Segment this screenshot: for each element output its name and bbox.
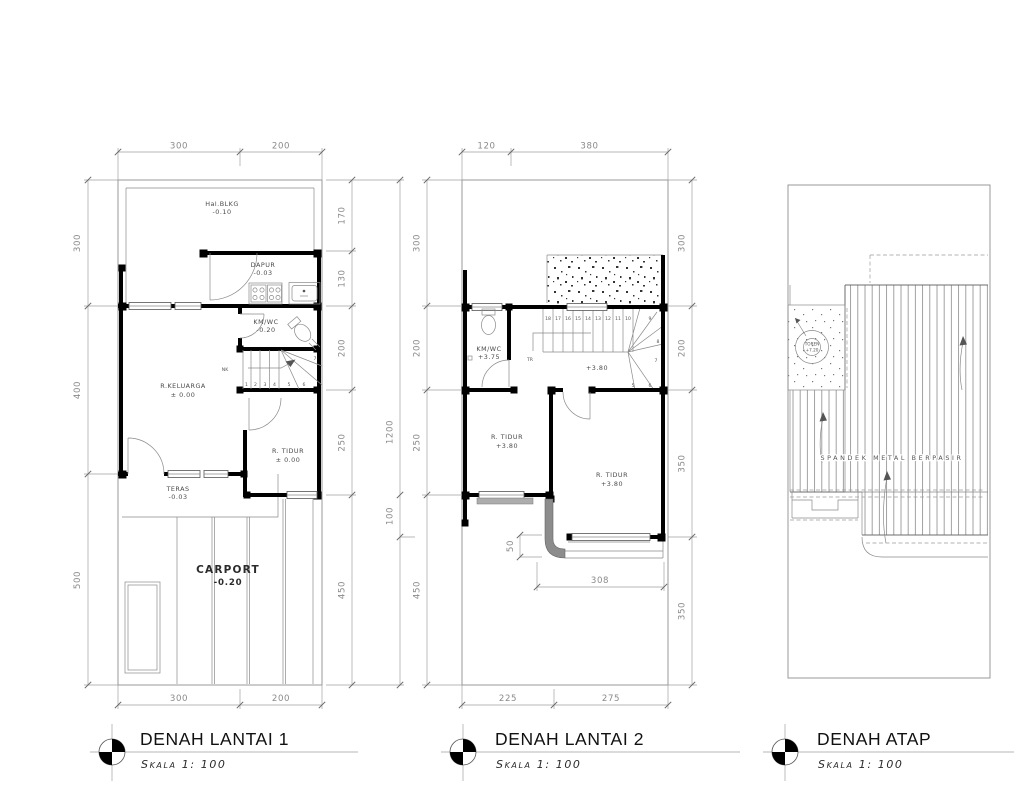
plan2-columns (462, 304, 668, 542)
kitchen-counter (249, 283, 320, 305)
atap-scale: Skala 1: 100 (818, 758, 904, 771)
dim: 250 (413, 433, 423, 451)
stair-num: 8 (657, 339, 660, 345)
plan2-title: DENAH LANTAI 2 (495, 729, 644, 749)
toilet-icon-lt1 (287, 316, 314, 345)
plan2-scale: Skala 1: 100 (496, 758, 582, 771)
dim: 300 (678, 234, 688, 252)
stair-num: 12 (605, 316, 611, 322)
tr-label: TR (526, 357, 534, 363)
room-keluarga-level: ± 0.00 (171, 391, 196, 399)
stove-icon (251, 285, 282, 302)
stair-num: 6 (303, 382, 306, 388)
room-tidur2: R. TIDUR (596, 471, 628, 479)
dim: 300 (170, 142, 188, 152)
room-kmwc-lt1: KM/WC (253, 318, 278, 326)
dim: 250 (338, 433, 348, 451)
toren-label: TOREN (804, 342, 820, 347)
room-carport-level: -0.20 (214, 578, 243, 588)
room-carport: CARPORT (196, 564, 260, 576)
dim: 130 (338, 269, 348, 287)
stair-num: 7 (655, 358, 658, 364)
landing-level: +3.80 (586, 364, 608, 372)
plan1-windows (129, 303, 317, 499)
room-kmwc-lt1-level: -0.20 (256, 326, 275, 334)
dim-canopy-depth: 50 (506, 540, 516, 552)
room-tidur2-level: +3.80 (601, 480, 623, 488)
plan1-property-boundary (118, 180, 322, 685)
stair-num: 5 (632, 383, 635, 389)
room-kmwc-lt2-level: +3.75 (478, 353, 500, 361)
void-hatch (547, 255, 663, 305)
dim: 200 (413, 339, 423, 357)
dim-canopy-width: 308 (591, 576, 609, 586)
room-dapur: DAPUR (251, 261, 276, 269)
dim: 300 (170, 694, 188, 704)
room-teras-level: -0.03 (168, 493, 187, 501)
stair-num: 17 (555, 316, 561, 322)
stair-num: 14 (585, 316, 591, 322)
dim: 120 (477, 142, 495, 152)
toren-level: +7.20 (806, 348, 819, 353)
dim: 450 (338, 581, 348, 599)
dim-total: 1200 (386, 420, 396, 444)
dim: 200 (272, 694, 290, 704)
atap-title: DENAH ATAP (817, 729, 931, 749)
roof-panel-left (790, 390, 845, 492)
plan1-scale: Skala 1: 100 (141, 758, 227, 771)
title-lantai1: DENAH LANTAI 1 Skala 1: 100 (90, 724, 358, 781)
stair-num: 9 (649, 316, 652, 322)
plan1-structure (118, 188, 322, 684)
stair-num: 18 (545, 316, 551, 322)
dim: 400 (73, 381, 83, 399)
dim: 350 (678, 602, 688, 620)
room-tidur-lt1: R. TIDUR (272, 447, 304, 455)
title-atap: DENAH ATAP Skala 1: 100 (763, 724, 1014, 781)
dim: 350 (678, 454, 688, 472)
room-keluarga: R.KELUARGA (160, 382, 206, 390)
window-ledge (477, 498, 533, 504)
dim: 275 (602, 694, 620, 704)
dim: 300 (73, 234, 83, 252)
dim: 200 (678, 339, 688, 357)
dim: 300 (413, 234, 423, 252)
plan1-dimensions: 300 200 300 200 300 400 500 170 130 200 … (73, 142, 415, 710)
room-dapur-level: -0.03 (253, 269, 272, 277)
room-teras: TERAS (165, 485, 189, 493)
dim: 170 (338, 206, 348, 224)
toilet-icon-lt2 (482, 309, 496, 335)
dim: 500 (73, 571, 83, 589)
stair-num: 10 (625, 316, 631, 322)
floor-drain-icon (468, 356, 472, 360)
dim: 200 (338, 339, 348, 357)
plan1-title: DENAH LANTAI 1 (140, 729, 289, 749)
roof-panel-right-lower (862, 492, 988, 535)
stair-num: 6 (649, 383, 652, 389)
dim-sub: 100 (386, 507, 396, 525)
sink-icon (289, 283, 320, 305)
stair-num: 4 (273, 382, 276, 388)
room-tidur1-level: +3.80 (496, 442, 518, 450)
stair-num: 16 (565, 316, 571, 322)
dim: 200 (272, 142, 290, 152)
stair-num: 7 (314, 356, 317, 362)
plan1-labels: Hal.BLKG -0.10 DAPUR -0.03 KM/WC -0.20 R… (160, 200, 316, 588)
stair-num: 3 (264, 382, 267, 388)
room-tidur1: R. TIDUR (491, 433, 523, 441)
stair-num: 5 (288, 382, 291, 388)
stair-num: 11 (615, 316, 621, 322)
stair-num: 13 (595, 316, 601, 322)
roof-material-label: SPANDEK METAL BERPASIR (820, 454, 963, 462)
floor-plan-1: Hal.BLKG -0.10 DAPUR -0.03 KM/WC -0.20 R… (73, 142, 415, 710)
plan2-dimensions: 120 380 225 275 300 200 250 450 300 200 … (413, 142, 698, 710)
stair-num: 1 (245, 382, 248, 388)
title-lantai2: DENAH LANTAI 2 Skala 1: 100 (441, 724, 740, 781)
dim: 225 (499, 694, 517, 704)
room-kmwc-lt2: KM/WC (476, 345, 501, 353)
architectural-drawing-sheet: Hal.BLKG -0.10 DAPUR -0.03 KM/WC -0.20 R… (0, 0, 1024, 804)
planting-bed (125, 582, 160, 673)
dim: 450 (413, 581, 423, 599)
plan2-labels: KM/WC +3.75 R. TIDUR +3.80 R. TIDUR +3.8… (476, 316, 659, 488)
floor-plan-2: KM/WC +3.75 R. TIDUR +3.80 R. TIDUR +3.8… (413, 142, 698, 710)
stair-num: 15 (575, 316, 581, 322)
drawing-svg: Hal.BLKG -0.10 DAPUR -0.03 KM/WC -0.20 R… (0, 0, 1024, 804)
room-hal-blkg: Hal.BLKG (205, 200, 239, 208)
stair-num: 2 (254, 382, 257, 388)
dim: 380 (580, 142, 598, 152)
water-tank: TOREN +7.20 (788, 305, 845, 390)
roof-plan: TOREN +7.20 SPANDEK METAL BERPASIR (788, 185, 990, 678)
canopy-below (545, 499, 565, 558)
room-hal-blkg-level: -0.10 (212, 208, 231, 216)
stair-note: NK (222, 367, 229, 373)
plan1-doors (128, 253, 281, 474)
room-tidur-lt1-level: ± 0.00 (276, 456, 301, 464)
